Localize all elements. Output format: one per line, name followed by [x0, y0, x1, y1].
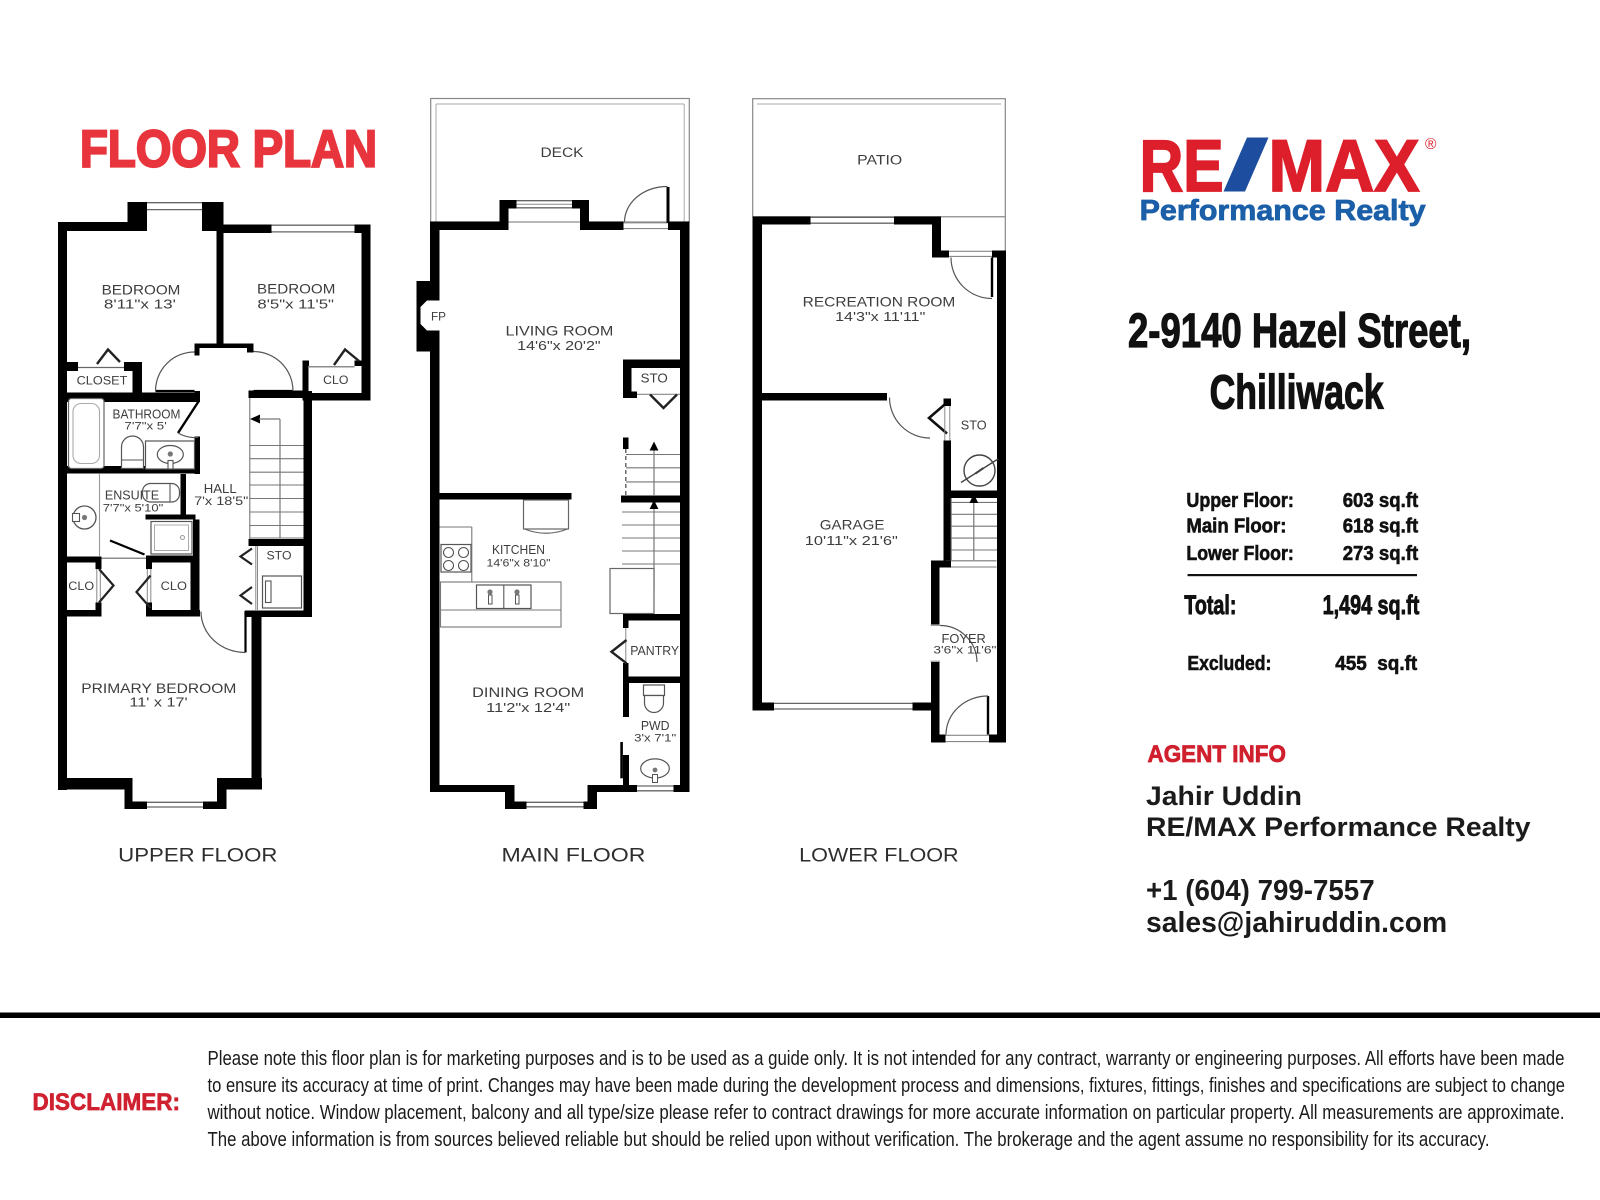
svg-text:LIVING ROOM: LIVING ROOM	[506, 322, 614, 338]
svg-text:14'3"x 11'11": 14'3"x 11'11"	[835, 309, 926, 324]
svg-text:RECREATION ROOM: RECREATION ROOM	[803, 294, 956, 310]
svg-text:CLO: CLO	[161, 581, 187, 593]
svg-text:11'2"x 12'4": 11'2"x 12'4"	[486, 700, 570, 715]
svg-text:Main Floor:: Main Floor:	[1186, 516, 1286, 538]
svg-text:11' x 17': 11' x 17'	[129, 695, 187, 710]
svg-text:603 sq.ft: 603 sq.ft	[1343, 490, 1419, 512]
svg-text:455 sq.ft: 455 sq.ft	[1335, 652, 1417, 675]
svg-text:STO: STO	[267, 549, 292, 563]
svg-text:CLO: CLO	[68, 581, 94, 593]
svg-text:8'11"x 13': 8'11"x 13'	[104, 297, 176, 312]
svg-text:LOWER FLOOR: LOWER FLOOR	[799, 845, 959, 867]
svg-text:14'6"x 8'10": 14'6"x 8'10"	[487, 558, 551, 570]
svg-text:BEDROOM: BEDROOM	[257, 281, 335, 297]
svg-text:7'x 18'5": 7'x 18'5"	[194, 494, 248, 508]
svg-text:DISCLAIMER:: DISCLAIMER:	[33, 1089, 181, 1116]
svg-text:PATIO: PATIO	[857, 153, 902, 168]
svg-text:PANTRY: PANTRY	[630, 644, 680, 658]
svg-text:BEDROOM: BEDROOM	[102, 282, 181, 298]
svg-text:7'7"x 5': 7'7"x 5'	[124, 421, 166, 433]
svg-text:+1 (604) 799-7557: +1 (604) 799-7557	[1146, 875, 1375, 907]
svg-text:273 sq.ft: 273 sq.ft	[1343, 543, 1419, 565]
svg-text:STO: STO	[641, 372, 668, 386]
svg-text:Total:: Total:	[1184, 590, 1236, 620]
svg-text:FP: FP	[431, 310, 446, 324]
svg-text:BATHROOM: BATHROOM	[113, 408, 181, 422]
svg-text:PWD: PWD	[641, 719, 670, 733]
svg-text:2-9140 Hazel Street,: 2-9140 Hazel Street,	[1128, 305, 1471, 358]
svg-text:RE/MAX Performance Realty: RE/MAX Performance Realty	[1146, 812, 1531, 842]
svg-text:3'6"x 11'6": 3'6"x 11'6"	[933, 645, 996, 657]
svg-text:FLOOR PLAN: FLOOR PLAN	[80, 121, 377, 179]
svg-text:MAIN FLOOR: MAIN FLOOR	[502, 845, 646, 867]
svg-text:GARAGE: GARAGE	[820, 517, 885, 533]
svg-text:Excluded:: Excluded:	[1187, 652, 1271, 675]
svg-text:DECK: DECK	[541, 145, 584, 160]
svg-text:UPPER FLOOR: UPPER FLOOR	[118, 845, 277, 867]
svg-text:Performance Realty: Performance Realty	[1140, 195, 1426, 227]
svg-text:AGENT INFO: AGENT INFO	[1148, 741, 1286, 768]
svg-text:The above information is from: The above information is from sources be…	[208, 1129, 1490, 1151]
svg-text:14'6"x 20'2": 14'6"x 20'2"	[517, 338, 601, 353]
svg-text:Chilliwack: Chilliwack	[1210, 367, 1384, 420]
svg-text:DINING ROOM: DINING ROOM	[472, 684, 584, 700]
svg-text:618 sq.ft: 618 sq.ft	[1343, 516, 1419, 538]
svg-text:STO: STO	[961, 419, 987, 433]
svg-text:CLOSET: CLOSET	[77, 374, 129, 388]
svg-text:without notice. Window placeme: without notice. Window placement, balcon…	[207, 1102, 1565, 1124]
svg-text:Lower Floor:: Lower Floor:	[1186, 543, 1293, 565]
svg-text:to ensure its accuracy at time: to ensure its accuracy at time of print.…	[208, 1075, 1566, 1097]
svg-text:8'5"x 11'5": 8'5"x 11'5"	[257, 297, 334, 312]
svg-text:10'11"x 21'6": 10'11"x 21'6"	[805, 533, 899, 548]
svg-text:®: ®	[1425, 136, 1437, 153]
svg-text:Upper Floor:: Upper Floor:	[1186, 490, 1293, 512]
svg-text:Jahir Uddin: Jahir Uddin	[1146, 781, 1302, 811]
svg-text:3'x 7'1": 3'x 7'1"	[634, 733, 676, 745]
svg-text:sales@jahiruddin.com: sales@jahiruddin.com	[1146, 907, 1447, 939]
svg-text:ENSUITE: ENSUITE	[105, 489, 159, 503]
svg-text:Please note this floor plan is: Please note this floor plan is for marke…	[208, 1048, 1565, 1070]
svg-text:CLO: CLO	[323, 375, 348, 387]
svg-text:7'7"x 5'10": 7'7"x 5'10"	[103, 502, 164, 514]
svg-text:KITCHEN: KITCHEN	[492, 542, 545, 557]
svg-text:1,494 sq.ft: 1,494 sq.ft	[1323, 590, 1420, 620]
